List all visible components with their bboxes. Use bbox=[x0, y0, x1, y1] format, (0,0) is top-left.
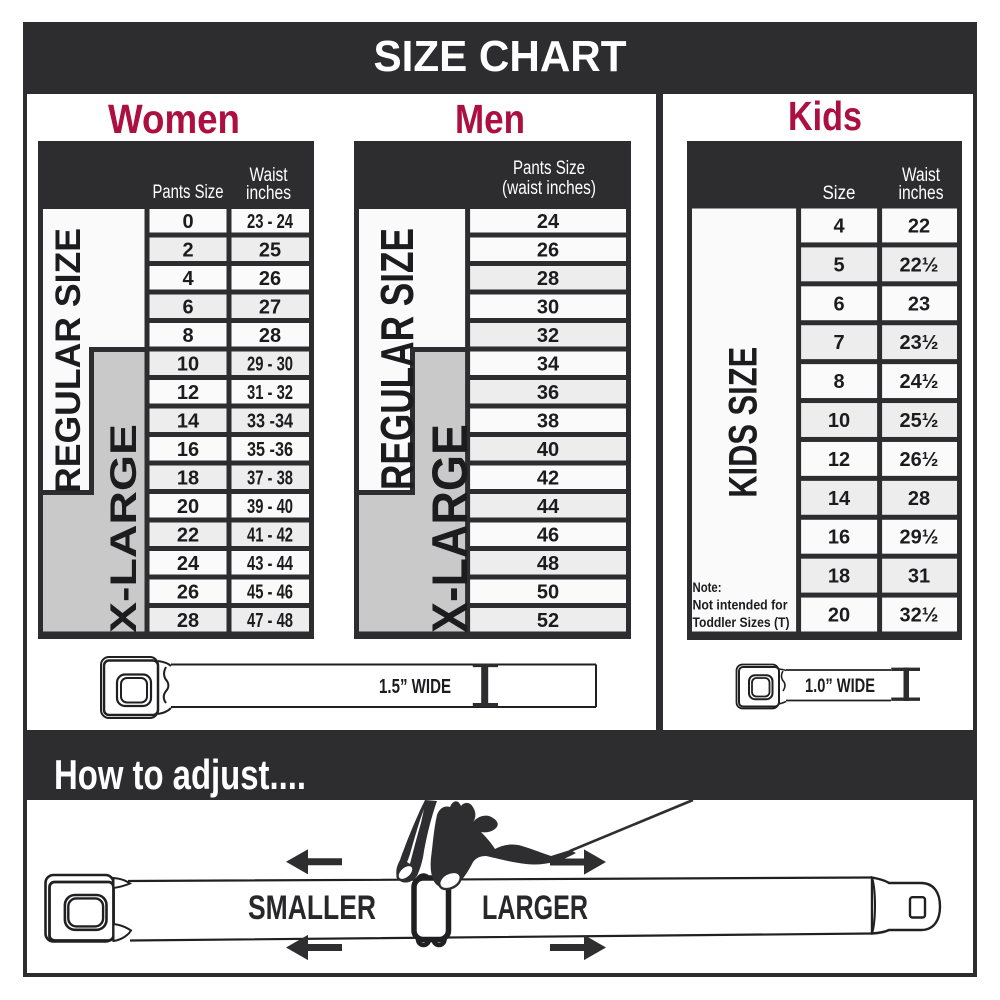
svg-text:7: 7 bbox=[833, 332, 844, 354]
svg-text:33 -34: 33 -34 bbox=[247, 410, 294, 432]
svg-text:6: 6 bbox=[833, 293, 844, 315]
svg-text:REGULAR SIZE: REGULAR SIZE bbox=[371, 228, 423, 490]
svg-text:47 - 48: 47 - 48 bbox=[247, 610, 293, 632]
svg-text:39 - 40: 39 - 40 bbox=[247, 496, 293, 518]
svg-text:(waist inches): (waist inches) bbox=[502, 178, 596, 199]
svg-text:42: 42 bbox=[537, 467, 559, 489]
svg-text:26: 26 bbox=[537, 239, 559, 261]
svg-text:REGULAR SIZE: REGULAR SIZE bbox=[49, 228, 88, 493]
svg-text:KIDS SIZE: KIDS SIZE bbox=[722, 347, 766, 498]
svg-text:52: 52 bbox=[537, 610, 559, 632]
svg-text:24: 24 bbox=[177, 553, 200, 575]
svg-text:26½: 26½ bbox=[900, 449, 939, 471]
svg-text:Pants Size: Pants Size bbox=[153, 182, 224, 203]
svg-text:X-LARGE: X-LARGE bbox=[103, 424, 144, 633]
svg-text:Kids: Kids bbox=[788, 93, 862, 139]
svg-text:36: 36 bbox=[537, 382, 559, 404]
svg-text:Men: Men bbox=[455, 96, 525, 142]
svg-text:20: 20 bbox=[828, 605, 850, 627]
svg-text:12: 12 bbox=[828, 449, 850, 471]
svg-text:29 - 30: 29 - 30 bbox=[247, 353, 293, 375]
svg-text:28: 28 bbox=[908, 488, 930, 510]
svg-text:22: 22 bbox=[177, 524, 199, 546]
svg-text:45 - 46: 45 - 46 bbox=[247, 581, 293, 603]
svg-text:50: 50 bbox=[537, 581, 559, 603]
svg-text:X-LARGE: X-LARGE bbox=[422, 424, 478, 633]
svg-text:26: 26 bbox=[177, 581, 199, 603]
svg-text:29½: 29½ bbox=[900, 527, 939, 549]
svg-text:23 - 24: 23 - 24 bbox=[247, 211, 294, 233]
svg-text:10: 10 bbox=[177, 353, 199, 375]
svg-text:6: 6 bbox=[182, 296, 193, 318]
svg-text:27: 27 bbox=[259, 296, 281, 318]
svg-text:22: 22 bbox=[908, 215, 930, 237]
svg-text:Size: Size bbox=[823, 183, 856, 204]
svg-text:44: 44 bbox=[537, 496, 560, 518]
svg-text:14: 14 bbox=[177, 410, 200, 432]
svg-text:46: 46 bbox=[537, 524, 559, 546]
svg-text:Not intended for: Not intended for bbox=[693, 598, 789, 613]
svg-text:23: 23 bbox=[908, 293, 930, 315]
svg-text:SMALLER: SMALLER bbox=[248, 889, 376, 927]
svg-text:inches: inches bbox=[246, 183, 291, 204]
svg-text:26: 26 bbox=[259, 268, 281, 290]
svg-text:18: 18 bbox=[828, 566, 850, 588]
svg-text:30: 30 bbox=[537, 296, 559, 318]
svg-text:inches: inches bbox=[899, 183, 944, 204]
svg-text:LARGER: LARGER bbox=[482, 889, 588, 927]
svg-text:41 - 42: 41 - 42 bbox=[247, 524, 293, 546]
svg-text:22½: 22½ bbox=[900, 254, 939, 276]
svg-text:10: 10 bbox=[828, 410, 850, 432]
svg-text:25: 25 bbox=[259, 239, 281, 261]
svg-text:35 -36: 35 -36 bbox=[247, 439, 293, 461]
svg-text:5: 5 bbox=[833, 254, 844, 276]
svg-text:1.0” WIDE: 1.0” WIDE bbox=[805, 676, 875, 697]
svg-text:28: 28 bbox=[259, 325, 281, 347]
svg-text:1.5” WIDE: 1.5” WIDE bbox=[379, 676, 451, 698]
svg-text:4: 4 bbox=[833, 215, 845, 237]
svg-text:48: 48 bbox=[537, 553, 559, 575]
svg-text:24: 24 bbox=[537, 211, 560, 233]
svg-text:31: 31 bbox=[908, 566, 930, 588]
svg-text:25½: 25½ bbox=[900, 410, 939, 432]
svg-text:28: 28 bbox=[177, 610, 199, 632]
svg-text:34: 34 bbox=[537, 353, 560, 375]
svg-text:Pants Size: Pants Size bbox=[513, 158, 585, 179]
svg-text:14: 14 bbox=[828, 488, 851, 510]
svg-text:SIZE CHART: SIZE CHART bbox=[374, 32, 627, 81]
svg-text:Toddler Sizes (T): Toddler Sizes (T) bbox=[693, 615, 790, 630]
svg-text:8: 8 bbox=[182, 325, 193, 347]
svg-text:16: 16 bbox=[828, 527, 850, 549]
svg-text:24½: 24½ bbox=[900, 371, 939, 393]
svg-text:16: 16 bbox=[177, 439, 199, 461]
svg-text:18: 18 bbox=[177, 467, 199, 489]
svg-text:23½: 23½ bbox=[900, 332, 939, 354]
svg-text:How to adjust....: How to adjust.... bbox=[54, 751, 306, 798]
svg-text:0: 0 bbox=[182, 211, 193, 233]
svg-text:32½: 32½ bbox=[900, 605, 939, 627]
svg-text:Note:: Note: bbox=[693, 580, 722, 595]
svg-text:31 - 32: 31 - 32 bbox=[247, 382, 293, 404]
svg-text:Women: Women bbox=[108, 96, 240, 142]
svg-text:37 - 38: 37 - 38 bbox=[247, 467, 293, 489]
svg-text:28: 28 bbox=[537, 268, 559, 290]
svg-text:40: 40 bbox=[537, 439, 559, 461]
svg-text:20: 20 bbox=[177, 496, 199, 518]
svg-text:43 - 44: 43 - 44 bbox=[247, 553, 294, 575]
svg-text:8: 8 bbox=[833, 371, 844, 393]
svg-text:38: 38 bbox=[537, 410, 559, 432]
svg-text:4: 4 bbox=[182, 268, 194, 290]
svg-text:32: 32 bbox=[537, 325, 559, 347]
svg-text:2: 2 bbox=[182, 239, 193, 261]
svg-text:12: 12 bbox=[177, 382, 199, 404]
